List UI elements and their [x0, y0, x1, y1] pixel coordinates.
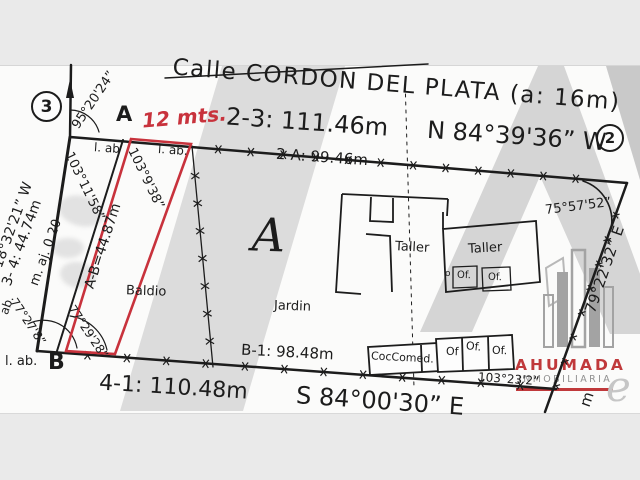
office-label: Of: [446, 346, 459, 357]
lot-designation: A: [251, 211, 286, 258]
boundary-note-top-right: l. ab.: [158, 143, 189, 157]
workshop-left-label: Taller: [395, 240, 430, 255]
building-left-outline: [336, 194, 448, 294]
office-small-label: o: [445, 270, 451, 279]
workshop-right-label: Taller: [468, 241, 503, 256]
survey-plan-image: AHUMADA INMOBILIARIA e: [0, 0, 640, 480]
office-label: Of.: [465, 340, 481, 353]
street-side-line: [70, 65, 71, 138]
office-label: Of.: [492, 345, 508, 357]
boundary-note-bottom: l. ab.: [5, 355, 37, 368]
north-arrow: [66, 79, 74, 98]
vacant-land-label: Baldio: [126, 284, 167, 298]
office-label: Of.: [457, 271, 471, 281]
garden-label: Jardin: [274, 299, 311, 313]
boundary-note-top-left: l. ab: [94, 141, 121, 155]
vertex-a-label: A: [116, 104, 132, 125]
dashed-division-line: [405, 78, 414, 388]
office-label: Of.: [488, 273, 502, 283]
fence-line: [192, 146, 213, 367]
ab-division-line: [57, 140, 123, 351]
kitchen-diner-label: CocComed.: [371, 350, 434, 364]
vertex-b-label: B: [48, 352, 65, 374]
vertex-3-badge: 3: [31, 91, 62, 122]
